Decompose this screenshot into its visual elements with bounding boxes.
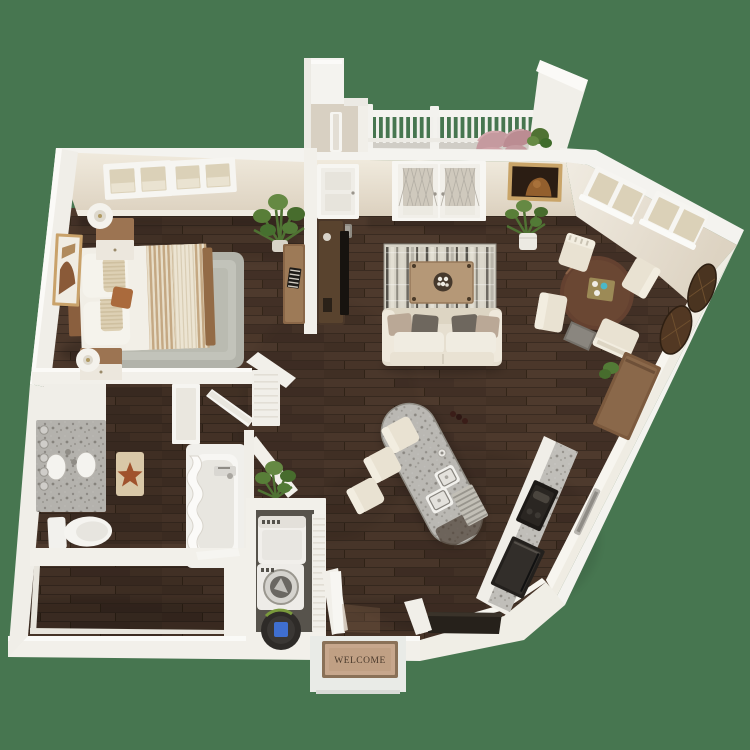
svg-text:WELCOME: WELCOME — [334, 656, 386, 666]
